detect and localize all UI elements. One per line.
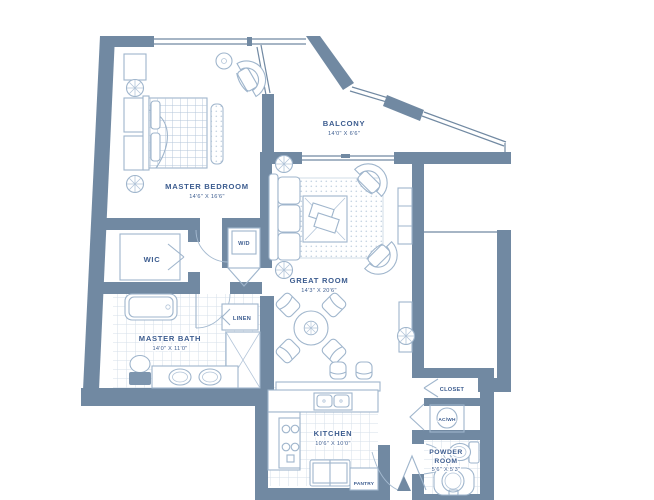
- room-dims: 5'6" X 5'3": [432, 467, 461, 473]
- wall-bath-top-a: [98, 282, 196, 294]
- entry-arrow: [397, 476, 411, 491]
- pillow: [151, 101, 160, 129]
- bar-stool: [330, 362, 346, 379]
- bedroom-armchair: [231, 54, 273, 100]
- linen-label: LINEN: [233, 316, 251, 322]
- wall-powder-left-a: [412, 430, 424, 444]
- wall-context-right: [478, 230, 511, 392]
- wall-powder-left-b: [412, 474, 424, 500]
- room-label-line1: POWDER: [429, 449, 463, 456]
- dining-chair: [275, 338, 302, 365]
- wall-wic-right-a: [188, 218, 200, 242]
- wall-left-exterior: [83, 36, 115, 390]
- bed-headboard: [143, 96, 149, 170]
- sofa-cushion: [278, 177, 300, 204]
- closet-door: [424, 379, 438, 397]
- bedroom-window: [154, 39, 306, 44]
- room-wic: WIC: [120, 234, 184, 280]
- room-dims: 14'0" X 11'0": [152, 346, 187, 352]
- wd-label: W/D: [238, 241, 250, 247]
- wall-balcony-bottom-right: [394, 152, 511, 164]
- wd-closet: [228, 228, 260, 268]
- acwh-label: AC/WH: [438, 417, 456, 423]
- room-label: MASTER BEDROOM: [165, 182, 249, 191]
- acwh-door: [410, 404, 424, 430]
- room-label: BALCONY: [323, 119, 365, 128]
- wall-top-left: [100, 36, 154, 47]
- dresser: [124, 54, 146, 80]
- dining-chair: [275, 292, 302, 319]
- wall-bath-bottom: [81, 388, 262, 406]
- toilet: [130, 356, 150, 373]
- floor-plan: MASTER BEDROOM 14'6" X 16'6" BALCONY 14'…: [0, 0, 654, 500]
- room-label: KITCHEN: [314, 429, 353, 438]
- plant-pot: [398, 328, 415, 345]
- dining-chair: [321, 338, 348, 365]
- room-dims: 14'6" X 16'6": [189, 194, 225, 200]
- entry-closets: CLOSET AC/WH: [430, 387, 465, 432]
- wall-bedroom-balcony-divider: [262, 94, 274, 154]
- plant-pot: [127, 176, 144, 193]
- window-mullion: [247, 37, 252, 46]
- plant-pot: [276, 156, 293, 173]
- dining-chair: [321, 292, 348, 319]
- plant-pot: [127, 80, 144, 97]
- nightstand: [124, 98, 144, 132]
- room-master-bedroom: MASTER BEDROOM 14'6" X 16'6": [124, 53, 272, 200]
- table-centerpiece: [304, 321, 318, 335]
- laundry-closet: W/D: [228, 228, 260, 268]
- bar-stool: [356, 362, 372, 379]
- sliding-door-handle: [341, 154, 350, 158]
- room-balcony: BALCONY 14'0" X 6'6": [323, 119, 365, 137]
- wall-greatroom-right: [412, 152, 424, 378]
- side-table: [216, 53, 232, 69]
- room-dims: 10'6" X 10'0": [315, 441, 351, 447]
- balcony-railing-2: [422, 112, 506, 152]
- closet-label: CLOSET: [440, 387, 465, 393]
- pillow: [151, 133, 160, 161]
- floor-plan-page: MASTER BEDROOM 14'6" X 16'6" BALCONY 14'…: [0, 0, 654, 500]
- room-great-room: GREAT ROOM 14'3" X 20'6": [269, 156, 415, 365]
- toilet-tank: [129, 372, 151, 385]
- wall-balcony-slant-2: [383, 95, 424, 121]
- room-dims: 14'0" X 6'6": [328, 131, 360, 137]
- media-cabinet: [398, 188, 412, 244]
- bathtub: [125, 294, 177, 320]
- wall-bedroom-bottom-a: [98, 218, 196, 230]
- room-dims: 14'3" X 20'6": [301, 288, 337, 294]
- vanity-counter: [152, 366, 238, 388]
- nightstand: [124, 136, 144, 170]
- room-label: GREAT ROOM: [290, 276, 349, 285]
- wall-balcony-slant-1: [306, 36, 354, 90]
- room-label: WIC: [144, 255, 161, 264]
- sofa-back: [269, 174, 278, 260]
- sofa-cushion: [278, 233, 300, 260]
- room-label-line2: ROOM: [434, 458, 457, 465]
- wall-kitchen-left: [255, 406, 268, 500]
- dining-set: [275, 292, 348, 365]
- pantry-label: PANTRY: [354, 481, 375, 487]
- sofa-cushion: [278, 205, 300, 232]
- bed-bench: [211, 104, 223, 164]
- room-label: MASTER BATH: [139, 334, 201, 343]
